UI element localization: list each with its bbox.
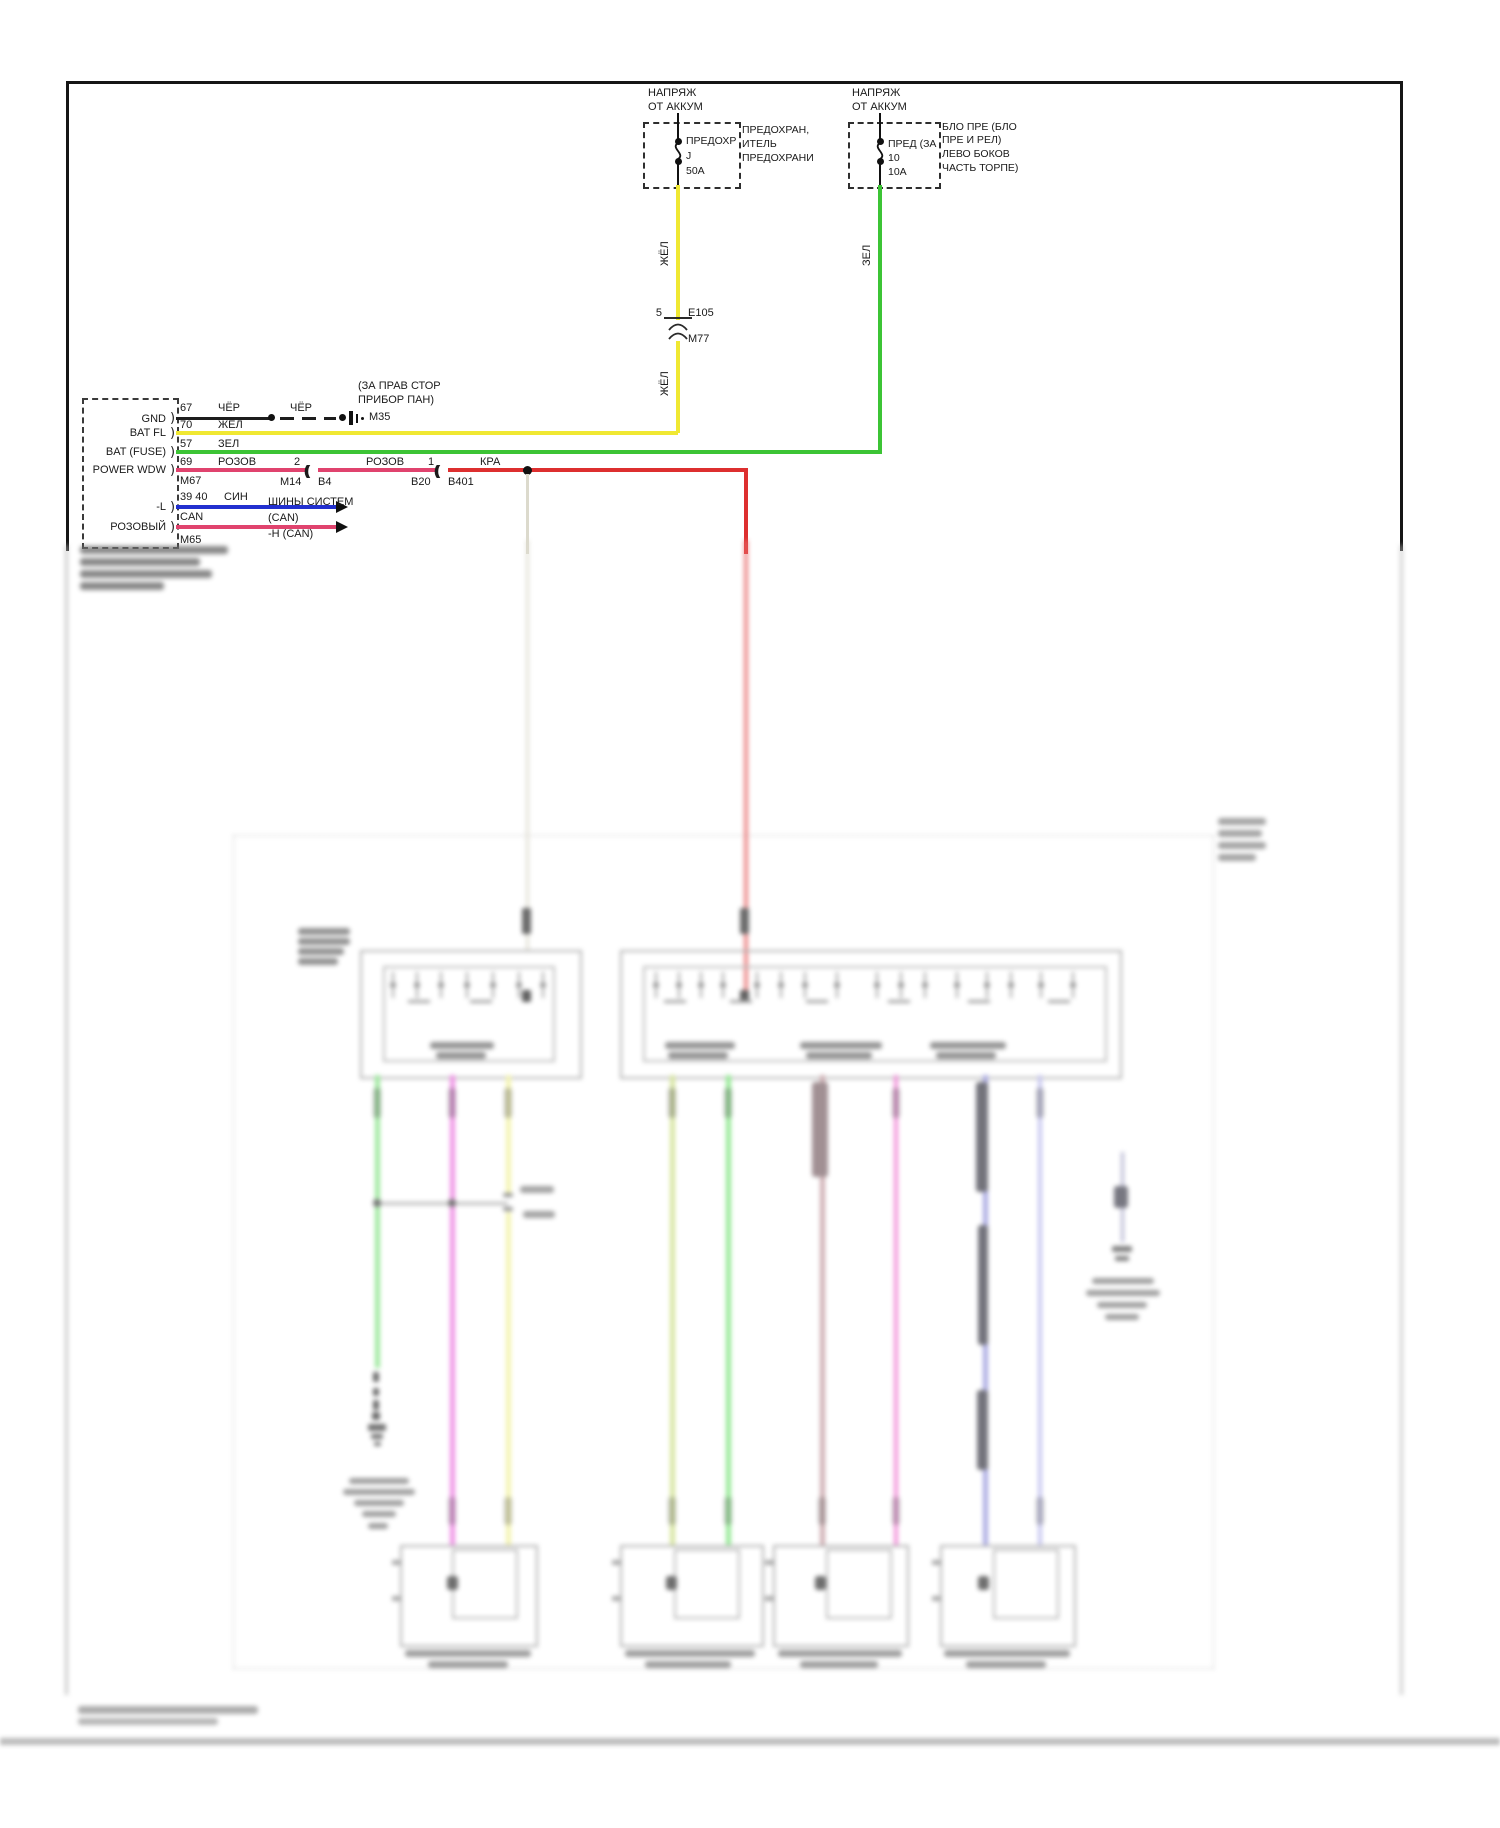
blurred-pin-dot	[954, 982, 960, 988]
blurred-wire-tick	[668, 1088, 676, 1118]
blurred-terminal-blob	[447, 1576, 458, 1590]
blurred-pin-foot	[408, 1000, 430, 1003]
blurred-pin-dot	[698, 982, 704, 988]
blurred-caption	[806, 1052, 872, 1059]
blurred-module-label	[298, 938, 350, 945]
blurred-footer-rule	[0, 1738, 1500, 1745]
blurred-pin-stub	[765, 1596, 775, 1601]
blurred-pin-foot	[1048, 1000, 1070, 1003]
blurred-pin-dot	[720, 982, 726, 988]
blurred-caption	[1086, 1290, 1160, 1296]
blurred-wire-tick	[892, 1088, 900, 1118]
blurred-connector-tick	[522, 908, 531, 934]
blurred-ground-dash	[373, 1372, 379, 1382]
blurred-module-label	[80, 570, 212, 578]
blurred-small-label	[523, 1211, 555, 1218]
blurred-wire-tick	[448, 1088, 456, 1118]
blurred-wire-tick	[668, 1497, 676, 1525]
blurred-junction-dot	[373, 1199, 381, 1207]
blurred-caption	[930, 1042, 1006, 1049]
blurred-ground-icon	[1112, 1246, 1132, 1252]
blurred-terminal-blob	[666, 1576, 677, 1590]
blurred-pin-stub	[932, 1596, 942, 1601]
blurred-pin-dot	[438, 982, 444, 988]
blurred-wire-label-cluster	[978, 1225, 988, 1345]
blurred-pin-dot	[802, 982, 808, 988]
blurred-ground-dash	[372, 1412, 380, 1420]
wiring-diagram-page: НАПРЯЖ ОТ АККУМ ПРЕДОХР J 50A ПРЕДОХРАН,…	[0, 0, 1500, 1828]
blurred-ground-icon	[371, 1434, 383, 1439]
blurred-circuit-wire	[375, 1075, 380, 1368]
blurred-connector-label	[1218, 854, 1256, 861]
blurred-pin-dot	[516, 982, 522, 988]
blurred-pin-foot	[470, 1000, 492, 1003]
blurred-pin-stub	[612, 1560, 622, 1565]
blurred-pin-foot	[806, 1000, 828, 1003]
blurred-wire-label-cluster	[977, 1390, 988, 1470]
blurred-ground-icon	[368, 1424, 386, 1431]
blurred-pin-stub	[932, 1560, 942, 1565]
blurred-pin-foot	[730, 1000, 752, 1003]
blurred-pin-stub	[392, 1560, 402, 1565]
blurred-caption	[1097, 1302, 1147, 1308]
blurred-caption	[1092, 1278, 1154, 1284]
blurred-connector-label	[1218, 830, 1262, 837]
blurred-small-label	[520, 1186, 554, 1193]
blurred-module-label	[298, 948, 344, 955]
blurred-pin-dot	[922, 982, 928, 988]
blurred-caption	[349, 1478, 409, 1484]
blurred-pin-dot	[754, 982, 760, 988]
blurred-module-label	[80, 546, 228, 554]
blurred-pin-foot	[968, 1000, 990, 1003]
blurred-pin-dot	[414, 982, 420, 988]
blurred-connector-arc	[503, 1193, 513, 1197]
blurred-pin-dot	[834, 982, 840, 988]
blurred-component-box-inner	[826, 1549, 892, 1619]
blurred-wire-tick	[504, 1497, 512, 1525]
blurred-pin-stub	[392, 1596, 402, 1601]
blurred-pin-dot	[1038, 982, 1044, 988]
blurred-circuit-wire	[726, 1075, 731, 1545]
blurred-module-label	[80, 582, 164, 590]
blurred-pin-dot	[874, 982, 880, 988]
blurred-circuit-wire	[670, 1075, 675, 1545]
blurred-caption	[436, 1052, 486, 1059]
blurred-wire-label-cluster	[812, 1082, 828, 1177]
blurred-pin-dot	[1008, 982, 1014, 988]
blurred-pin-dot	[490, 982, 496, 988]
blurred-wire-tick	[448, 1497, 456, 1525]
blurred-component-box-inner	[452, 1549, 518, 1619]
blurred-caption	[944, 1650, 1070, 1657]
blurred-crossbar	[377, 1202, 508, 1205]
blurred-caption	[800, 1661, 878, 1668]
blurred-pin-dot	[676, 982, 682, 988]
blurred-connector-label	[1218, 818, 1266, 825]
blurred-wire-label-cluster	[976, 1082, 988, 1192]
blurred-caption	[428, 1661, 508, 1668]
blurred-gray-feed-wire	[526, 540, 529, 952]
blurred-connector-tick	[740, 908, 749, 934]
blurred-pin-dot	[1070, 982, 1076, 988]
blurred-module-label	[298, 928, 350, 935]
blurred-wire-tick	[1036, 1497, 1044, 1525]
blurred-wire-tick	[818, 1497, 826, 1525]
blurred-pin-dot	[898, 982, 904, 988]
blurred-wire-tick	[504, 1088, 512, 1118]
blurred-pin-foot	[888, 1000, 910, 1003]
blurred-module-label	[298, 958, 338, 965]
blurred-module-label	[80, 558, 200, 566]
blurred-connector-arc	[503, 1207, 513, 1211]
blurred-connector-label	[1218, 842, 1266, 849]
blurred-caption	[665, 1042, 735, 1049]
blurred-caption	[430, 1042, 494, 1049]
blurred-terminal-blob	[815, 1576, 826, 1590]
blurred-caption	[368, 1523, 388, 1529]
blurred-caption	[966, 1661, 1046, 1668]
blurred-caption	[405, 1650, 531, 1657]
blurred-circuit-wire	[450, 1075, 455, 1545]
blurred-caption	[668, 1052, 728, 1059]
blurred-wire-tick	[724, 1088, 732, 1118]
blurred-component-box-inner	[993, 1549, 1059, 1619]
blurred-caption	[354, 1500, 404, 1506]
blurred-terminal-blob	[978, 1576, 989, 1590]
blurred-circuit-wire	[506, 1212, 511, 1545]
blurred-wire-label-cluster	[1114, 1186, 1128, 1208]
blurred-circuit-wire	[894, 1075, 898, 1545]
blurred-pin-dot	[778, 982, 784, 988]
blurred-footer-text	[78, 1718, 218, 1725]
blurred-pin-dot	[653, 982, 659, 988]
blurred-pin-dot	[464, 982, 470, 988]
blurred-caption	[625, 1650, 755, 1657]
blurred-circuit-wire	[1038, 1075, 1042, 1545]
blurred-wire-tick	[892, 1497, 900, 1525]
blurred-lower-diagram	[0, 0, 1500, 1828]
blurred-wire-tick	[373, 1088, 381, 1118]
blurred-ground-icon	[1115, 1256, 1129, 1261]
blurred-ground-dash	[373, 1388, 379, 1396]
blurred-caption	[1105, 1314, 1139, 1320]
blurred-caption	[343, 1489, 415, 1495]
blurred-pin-dot	[540, 982, 546, 988]
blurred-junction-dot	[448, 1199, 456, 1207]
blurred-page-border-left	[65, 545, 68, 1695]
blurred-pin-foot	[664, 1000, 686, 1003]
blurred-footer-text	[78, 1706, 258, 1714]
blurred-caption	[645, 1661, 731, 1668]
blurred-ground-icon	[374, 1442, 381, 1446]
blurred-caption	[800, 1042, 882, 1049]
blurred-component-box-inner	[674, 1549, 740, 1619]
blurred-ground-dash	[373, 1400, 379, 1410]
blurred-caption	[362, 1511, 396, 1517]
blurred-wire-tick	[1036, 1088, 1044, 1118]
blurred-caption	[778, 1650, 902, 1657]
blurred-page-border-right	[1400, 545, 1403, 1695]
blurred-wire-tick	[724, 1497, 732, 1525]
blurred-pin-dot	[984, 982, 990, 988]
blurred-pin-stub	[612, 1596, 622, 1601]
blurred-caption	[936, 1052, 996, 1059]
blurred-pin-dot	[390, 982, 396, 988]
blurred-pin-stub	[765, 1560, 775, 1565]
